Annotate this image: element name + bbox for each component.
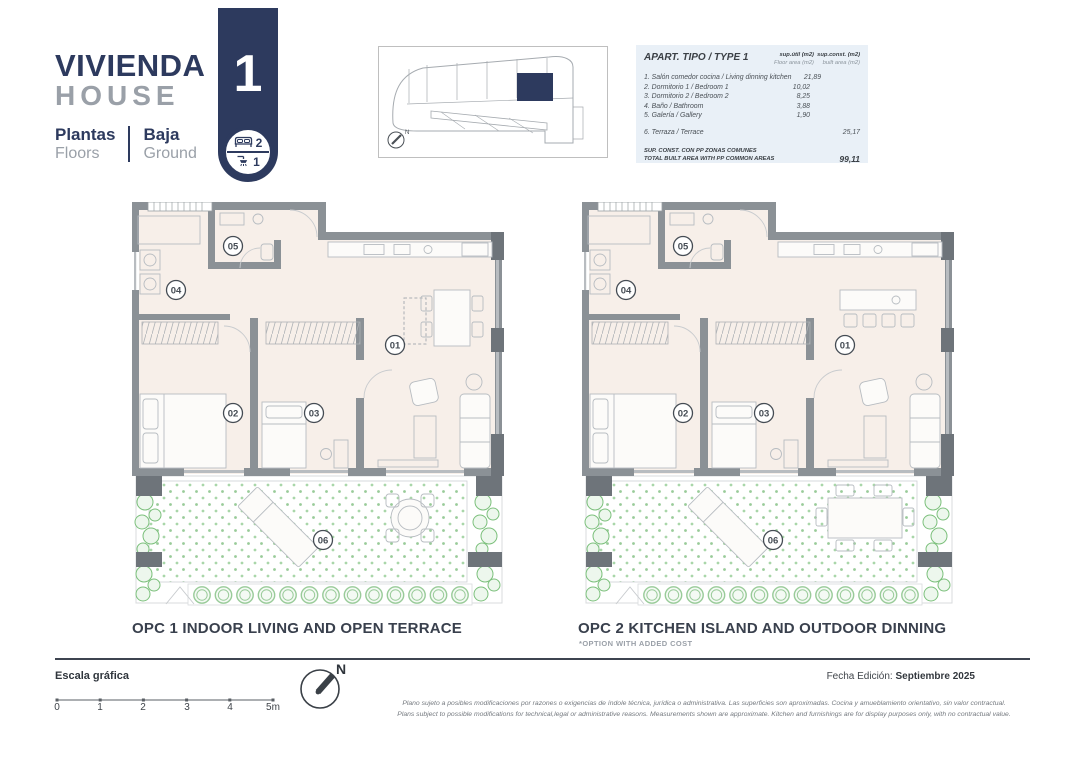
scale-label: Escala gráfica	[55, 670, 129, 682]
edition-value: Septiembre 2025	[896, 671, 976, 682]
scale-tick-5: 5m	[261, 702, 285, 713]
double-bed	[140, 394, 226, 468]
floor-plan-opc2: 01 02 03 04 05 06	[578, 202, 968, 612]
table-row: 3. Dormitorio 2 / Bedroom 28,25	[644, 93, 860, 101]
footer-divider	[55, 658, 1030, 660]
floor-value-es: Baja	[143, 125, 196, 145]
room-label-01: 01	[386, 336, 405, 355]
svg-text:05: 05	[678, 242, 689, 253]
plan-caption-opc2: OPC 2 KITCHEN ISLAND AND OUTDOOR DINNING	[578, 620, 946, 637]
double-bed	[590, 394, 676, 468]
svg-text:05: 05	[228, 242, 239, 253]
bedrooms-count: 2	[256, 137, 263, 149]
room-label-04: 04	[167, 281, 186, 300]
disclaimer-en: Plans subject to possible modifications …	[378, 710, 1030, 721]
room-label-02: 02	[224, 404, 243, 423]
north-label: N	[336, 661, 346, 677]
floors-block: Plantas Floors Baja Ground	[55, 125, 205, 163]
room-label-06: 06	[764, 531, 783, 550]
room-label-02: 02	[674, 404, 693, 423]
siteplan-unit-highlight	[517, 73, 553, 101]
room-label-03: 03	[305, 404, 324, 423]
floor-plan-opc1: 01 02 03 04 05 06	[128, 202, 518, 612]
plan-caption-opc1: OPC 1 INDOOR LIVING AND OPEN TERRACE	[132, 620, 462, 637]
kitchen-counter	[328, 242, 492, 257]
svg-text:04: 04	[171, 286, 182, 297]
scale-tick-1: 1	[88, 702, 112, 713]
scale-tick-4: 4	[218, 702, 242, 713]
col-built-area: sup.const. (m2) built area (m2)	[814, 52, 860, 67]
unit-stats-badge: 2 1	[222, 126, 274, 178]
unit-number: 1	[218, 8, 278, 100]
edition-label: Fecha Edición:	[827, 671, 893, 682]
svg-text:03: 03	[309, 409, 320, 420]
siteplan-building-outline	[393, 57, 583, 143]
table-row: 1. Salón comedor cocina / Living dinning…	[644, 74, 860, 82]
area-table: APART. TIPO / TYPE 1 sup.útil (m2) Floor…	[636, 45, 868, 163]
table-total-row: SUP. CONST. CON PP ZONAS COMUNES TOTAL B…	[644, 148, 860, 164]
floors-label-en: Floors	[55, 145, 115, 163]
legal-disclaimer: Plano sujeto a posibles modificaciones p…	[378, 699, 1030, 720]
scale-tick-0: 0	[45, 702, 69, 713]
shower-icon	[236, 155, 250, 168]
kitchen-counter	[778, 242, 942, 257]
disclaimer-es: Plano sujeto a posibles modificaciones p…	[378, 699, 1030, 710]
table-row: 2. Dormitorio 1 / Bedroom 110,02	[644, 84, 860, 92]
area-table-title: APART. TIPO / TYPE 1	[644, 52, 768, 63]
scale-tick-3: 3	[175, 702, 199, 713]
col-floor-area: sup.útil (m2) Floor area (m2)	[768, 52, 814, 67]
floors-divider	[128, 126, 130, 162]
svg-text:04: 04	[621, 286, 632, 297]
bed-icon	[234, 136, 253, 149]
bathrooms-count: 1	[253, 156, 260, 168]
room-label-05: 05	[224, 237, 243, 256]
siteplan-north-icon	[388, 132, 404, 148]
room-label-04: 04	[617, 281, 636, 300]
svg-text:03: 03	[759, 409, 770, 420]
svg-text:02: 02	[678, 409, 689, 420]
badge-divider	[227, 151, 269, 153]
svg-text:02: 02	[228, 409, 239, 420]
scale-tick-2: 2	[131, 702, 155, 713]
siteplan-north-label: N	[405, 130, 409, 136]
room-label-06: 06	[314, 531, 333, 550]
svg-text:06: 06	[318, 536, 329, 547]
floor-plan-sheet: VIVIENDA HOUSE Plantas Floors Baja Groun…	[0, 0, 1080, 763]
floor-value-en: Ground	[143, 145, 196, 163]
table-row: 4. Baño / Bathroom3,88	[644, 103, 860, 111]
svg-text:01: 01	[840, 341, 851, 352]
brand-block: VIVIENDA HOUSE Plantas Floors Baja Groun…	[55, 50, 205, 163]
table-row: 6. Terraza / Terrace25,17	[644, 129, 860, 137]
siteplan-box: N	[378, 46, 608, 158]
room-label-03: 03	[755, 404, 774, 423]
unit-number-ribbon: 1 2 1	[218, 8, 278, 182]
title-secondary: HOUSE	[55, 81, 205, 110]
room-label-01: 01	[836, 336, 855, 355]
room-label-05: 05	[674, 237, 693, 256]
edition-date: Fecha Edición: Septiembre 2025	[720, 671, 975, 682]
svg-text:01: 01	[390, 341, 401, 352]
title-primary: VIVIENDA	[55, 50, 205, 81]
table-row: 5. Galería / Gallery1,90	[644, 112, 860, 120]
floors-label-es: Plantas	[55, 125, 115, 145]
svg-text:06: 06	[768, 536, 779, 547]
total-built-area-value: 99,11	[810, 154, 860, 164]
plan-subcaption-opc2: *OPTION WITH ADDED COST	[579, 639, 693, 648]
